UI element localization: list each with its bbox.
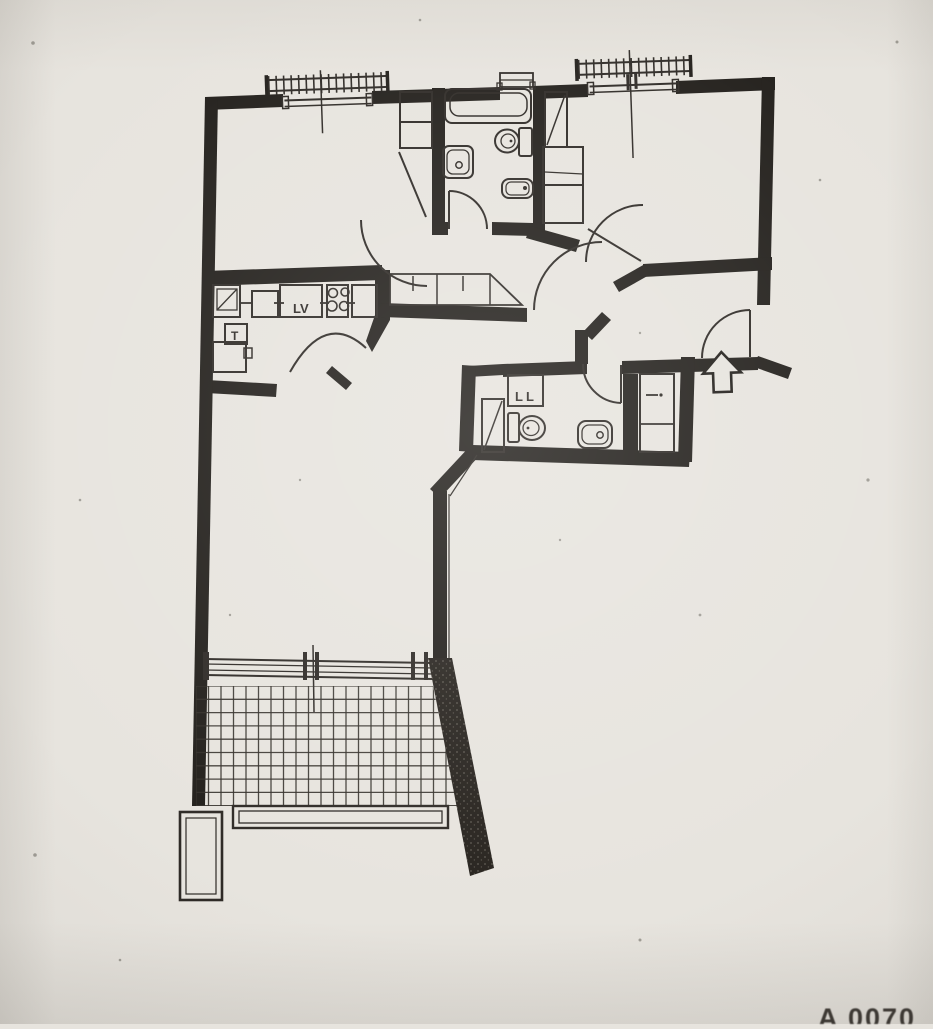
bedroom-2-wardrobe — [543, 92, 583, 223]
generated-line — [269, 76, 270, 95]
kitchen-door-leaf — [326, 366, 352, 390]
wall-stub-3 — [575, 330, 588, 364]
hallway-closet — [390, 274, 522, 305]
sliding-door-mullion — [424, 652, 428, 680]
door-bathroom-1 — [449, 191, 487, 229]
generated-line — [373, 72, 374, 91]
kitchen-t-label: T — [231, 329, 239, 343]
wall-kitchen-east-tip — [366, 315, 390, 352]
door-bathroom-2 — [583, 364, 621, 403]
railing-rungs — [579, 56, 685, 79]
wall-bath2-left — [459, 365, 476, 452]
generated-line — [366, 73, 367, 92]
railing-rungs — [269, 72, 382, 95]
toilet-1 — [495, 128, 532, 156]
balcony — [180, 645, 494, 900]
section-line — [313, 645, 314, 712]
kitchen-lower-appliance — [213, 342, 246, 372]
bedroom2-window — [574, 48, 695, 160]
wall-entry-stub — [754, 356, 792, 379]
washbasin-2 — [578, 421, 612, 448]
railing-rail — [268, 76, 388, 80]
generated-line — [358, 73, 359, 92]
generated-line — [284, 76, 285, 95]
balcony-railing — [233, 806, 448, 828]
generated-line — [351, 73, 352, 92]
generated-line — [684, 56, 685, 75]
wall-bath2-right — [623, 374, 638, 452]
entry-arrow-icon — [702, 351, 741, 392]
entry-closet — [640, 374, 674, 452]
generated-line — [594, 59, 595, 78]
generated-line — [306, 75, 307, 94]
window-sill — [284, 97, 371, 100]
sliding-door — [203, 645, 433, 712]
bathroom-window — [497, 73, 535, 90]
bedroom1-window — [264, 68, 391, 135]
generated-line — [676, 56, 677, 75]
wall-kitchen-south — [206, 380, 277, 397]
sliding-door-mullion — [411, 652, 415, 680]
counter-end — [352, 285, 377, 317]
cooktop-burners — [327, 288, 349, 311]
bidet — [502, 179, 533, 198]
railing-post — [689, 55, 693, 77]
generated-line — [639, 58, 640, 77]
wall-chamfer-stub-1 — [613, 264, 651, 292]
floor-plan: LV T LL — [0, 0, 933, 1024]
dishwasher-label: LV — [293, 301, 309, 316]
window-sill — [590, 83, 678, 86]
generated-line — [579, 60, 580, 79]
railing-post — [385, 71, 389, 93]
generated-line — [299, 75, 300, 94]
toilet-2 — [508, 413, 545, 442]
wall-bath1-bottom-left — [432, 222, 448, 235]
kitchen-fixtures: LV T — [213, 285, 377, 372]
wall-kitchen-north — [205, 265, 382, 286]
washbasin-1-drain — [456, 162, 462, 168]
bathroom-1-fixtures — [443, 89, 533, 198]
bathroom-2-fixtures: LL — [482, 375, 612, 452]
generated-line — [669, 57, 670, 76]
generated-line — [616, 59, 617, 78]
generated-line — [609, 59, 610, 78]
window-tick — [634, 73, 638, 89]
wall-living-right — [433, 491, 447, 672]
window-sill — [590, 89, 678, 92]
generated-line — [291, 75, 292, 94]
door-bedroom-2 — [586, 205, 643, 262]
watermark-text: A 0070 — [818, 1003, 933, 1024]
wall-right — [757, 77, 775, 305]
sliding-door-mullion — [203, 652, 209, 680]
sliding-door-mullion — [315, 652, 319, 680]
kitchen-appliance — [252, 291, 278, 317]
generated-line — [646, 58, 647, 77]
window-tick — [626, 74, 630, 90]
window-sill — [285, 103, 372, 106]
generated-line — [654, 57, 655, 76]
wall-bedroom2-bottom — [643, 257, 772, 277]
generated-line — [276, 76, 277, 95]
generated-line — [586, 60, 587, 79]
generated-line — [624, 58, 625, 77]
wall-east-closet — [678, 357, 695, 462]
walls — [192, 77, 792, 806]
generated-line — [314, 74, 315, 93]
door-corridor — [534, 242, 602, 310]
door-entry — [702, 310, 750, 358]
generated-line — [381, 72, 382, 91]
railing-rail — [268, 87, 388, 91]
wall-bath1-bottom-right — [492, 222, 533, 236]
generated-line — [661, 57, 662, 76]
balcony-tile-grid — [196, 686, 457, 806]
wall-top-bedroom2 — [676, 77, 775, 94]
washing-machine-label: LL — [515, 389, 537, 404]
generated-line — [336, 74, 337, 93]
planter — [180, 812, 222, 900]
door-kitchen — [290, 334, 366, 372]
balcony-diagonal-wall — [428, 658, 494, 876]
generated-line — [601, 59, 602, 78]
sliding-door-mullion — [303, 652, 307, 680]
ventilation-duct-2 — [482, 399, 504, 452]
generated-line — [344, 73, 345, 92]
generated-line — [631, 58, 632, 77]
generated-line — [329, 74, 330, 93]
